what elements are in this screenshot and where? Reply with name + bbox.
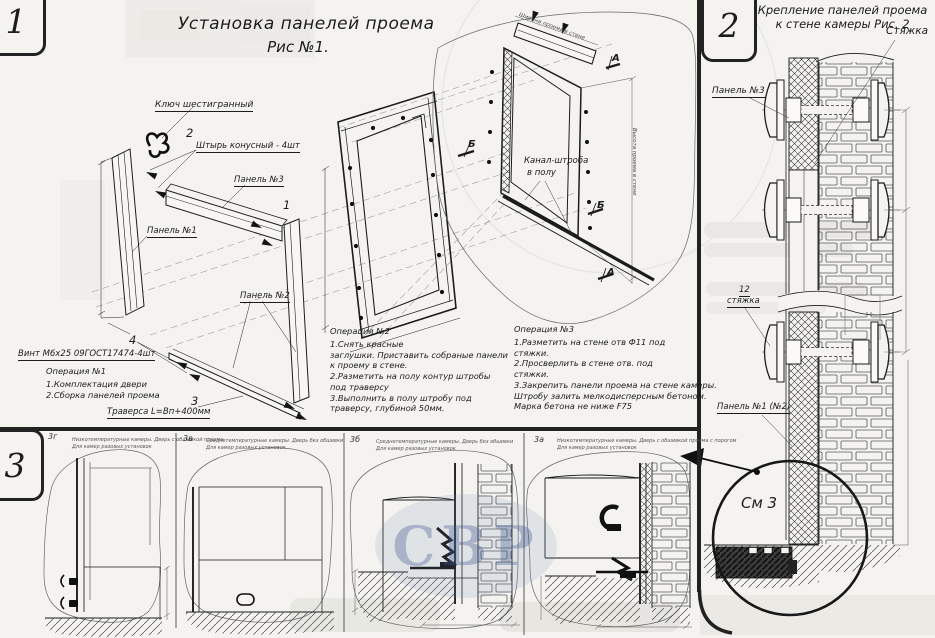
subfigure-3v-caption: Среднетемпературные камеры. Дверь без об… [206,438,343,452]
operation-2-line: под траверсу [330,382,508,393]
operation-3-line: 2.Просверлить в стене отв. под [514,358,717,369]
operation-2-note: Операция №2 1.Снять красные заглушки. Пр… [330,326,508,414]
see-detail-label: См 3 [741,494,777,512]
caption-line: Для камер разовых установок [376,446,513,453]
section-marker-b-right: Б [597,200,605,211]
section-1-number: 1 [6,2,27,41]
operation-1-line: 2.Сборка панелей проема [46,390,160,401]
fig1-frame-on-wall [433,11,696,324]
item-number-2: 2 [186,126,193,140]
label-tie: Стяжка [886,25,928,37]
operation-2-title: Операция №2 [330,326,508,337]
section-divider-vertical [697,0,701,592]
fig2-wall-detail [704,40,910,588]
label-panel2: Панель №2 [240,291,290,303]
operation-2-line: к проему в стене. [330,360,508,371]
label-tie-lower: стяжка [727,296,760,308]
section-1-badge: 1 [0,0,46,56]
operation-3-line: Штробу залить мелкодисперсным бетоном. [514,391,717,402]
operation-1-line: 1.Комплектация двери [46,379,160,390]
caption-line: Среднетемпературные камеры. Дверь без об… [206,438,343,445]
operation-2-line: 3.Выполнить в полу штробу под [330,393,508,404]
fig2-title: Крепление панелей проема [750,3,935,17]
subfigure-3v-id: 3в [183,434,193,443]
caption-line: Низкотемпературные камеры. Дверь с обшив… [72,437,223,444]
section-3-number: 3 [5,446,26,485]
fig1-assembled-frame [322,92,460,352]
section-marker-b-left: Б [468,139,476,150]
operation-3-line: стяжки. [514,348,717,359]
caption-line: Низкотемпературные камеры. Дверь с обшив… [557,438,736,445]
section-marker-a-top: А [612,53,620,64]
caption-line: Для камер разовых установок [206,445,343,452]
detail-arrow-line [700,458,757,472]
operation-3-line: стяжки. [514,369,717,380]
fig1-subtitle: Рис №1. [178,38,418,56]
blueprint-page: 1 2 3 Установка панелей проема Рис №1. К… [0,0,935,638]
section-marker-a-bottom: А [607,267,615,278]
operation-3-line: 1.Разметить на стене отв Ф11 под [514,337,717,348]
subfigure-3b-caption: Среднетемпературные камеры. Дверь без об… [376,439,513,453]
label-panel12: Панель №1 (№2) [717,402,790,414]
subfigure-3g-caption: Низкотемпературные камеры. Дверь с обшив… [72,437,223,451]
subfigure-3b-id: 3б [350,435,360,444]
label-fig2-panel3: Панель №3 [712,86,765,98]
operation-1-note: Операция №1 1.Комплектация двери 2.Сборк… [46,366,160,400]
item-number-3: 3 [191,394,198,408]
operation-3-line: Марка бетона не ниже F75 [514,401,717,412]
dim-label-opening-height: Высота проема в стене [631,128,637,196]
operation-3-note: Операция №3 1.Разметить на стене отв Ф11… [514,324,717,412]
operation-2-line: 2.Разметить на полу контур штробы [330,371,508,382]
operation-3-line: 3.Закрепить панели проема на стене камер… [514,380,717,391]
label-hex-key: Ключ шестигранный [155,100,253,112]
frame-bolts [348,116,444,320]
label-screw: Винт М6х25 09ГОСТ17474-4шт [18,349,155,361]
caption-line: Для камер разовых установок [72,444,223,451]
subfigure-3a-caption: Низкотемпературные камеры. Дверь с обшив… [557,438,736,452]
label-channel-line2: в полу [527,168,556,178]
hex-key-icon [147,134,168,157]
subfigure-3g-id: 3г [48,432,57,441]
label-cone-pin: Штырь конусный - 4шт [196,141,300,153]
label-channel-line1: Канал-штроба [524,156,588,166]
item-number-1: 1 [283,198,290,212]
operation-1-title: Операция №1 [46,366,160,377]
watermark-logo: СВР [375,494,557,598]
section-2-badge: 2 [701,0,757,62]
operation-3-title: Операция №3 [514,324,717,335]
section-divider-horizontal [0,427,699,431]
operation-2-line: траверсу, глубиной 50мм. [330,403,508,414]
section-2-number: 2 [719,6,740,45]
label-panel3: Панель №3 [234,175,284,187]
section-3-badge: 3 [0,429,44,501]
item-number-4: 4 [129,333,136,347]
caption-line: Для камер разовых установок [557,445,736,452]
operation-2-line: 1.Снять красные [330,339,508,350]
caption-line: Среднетемпературные камеры. Дверь без об… [376,439,513,446]
fig1-title: Установка панелей проема [178,14,418,34]
label-panel1: Панель №1 [147,226,197,238]
operation-2-line: заглушки. Приставить собраные панели [330,350,508,361]
subfigure-3a-id: 3а [534,435,544,444]
label-traverse: Траверса L=Вп+400мм [107,407,210,419]
subfigure-3g [44,450,170,637]
